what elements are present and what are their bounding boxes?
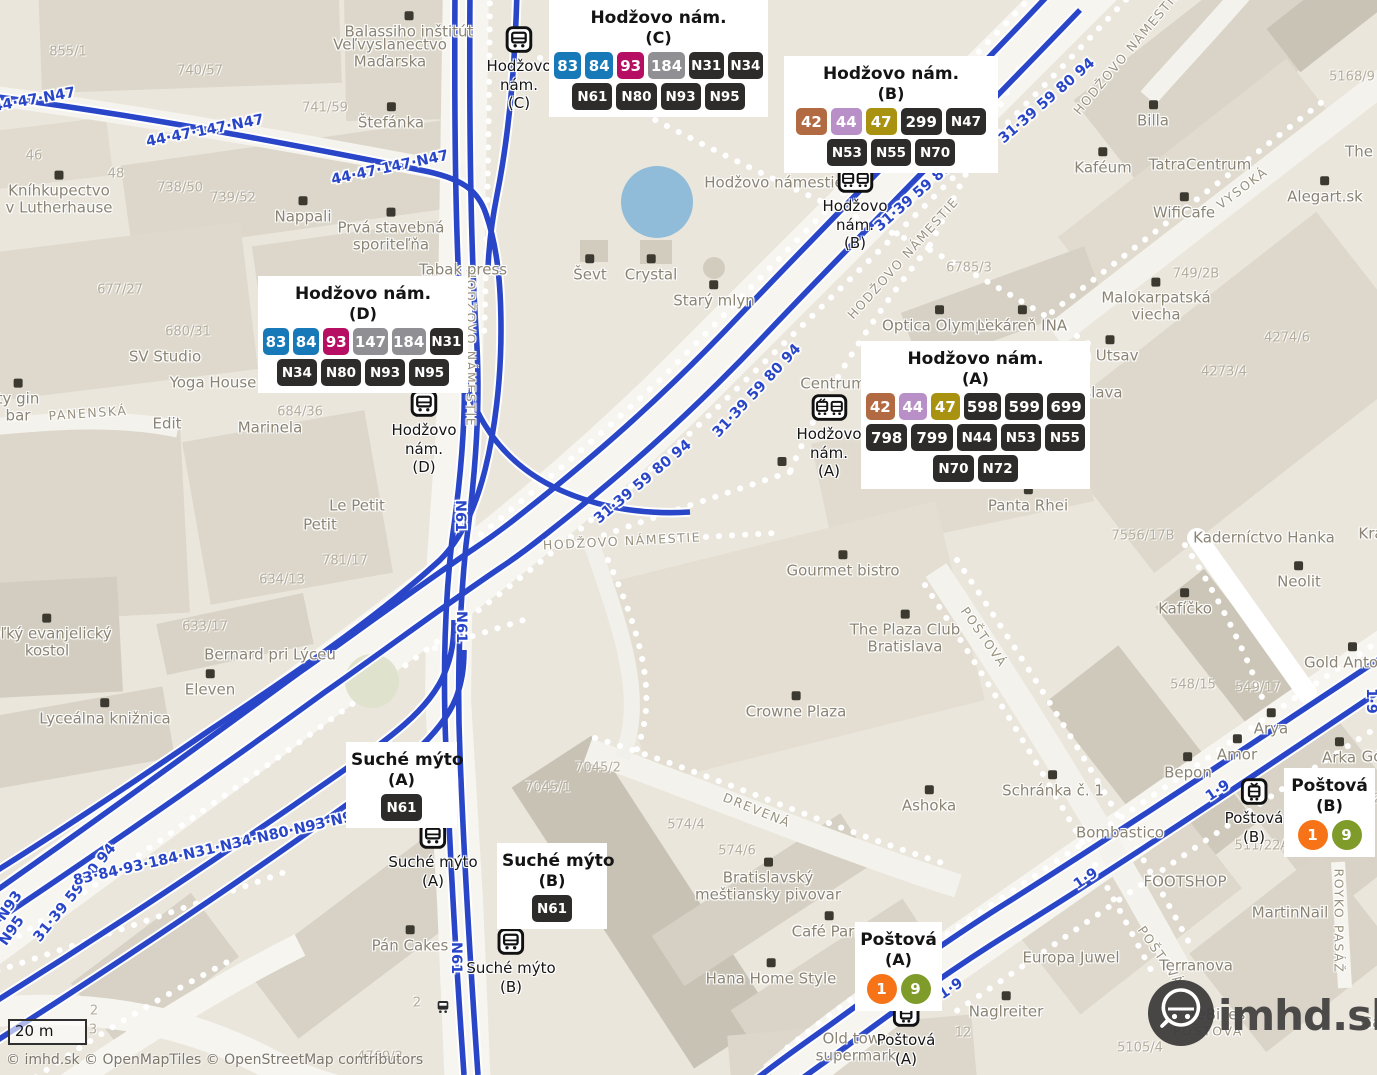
hotel-icon [791,691,800,700]
stop-marker-label: Hodžovo [822,198,887,216]
pharmacy-icon [1018,305,1027,314]
route-badge-N70[interactable]: N70 [933,455,973,482]
stop-marker: Hodžovonám.(B) [822,166,887,253]
dot-icon [1002,991,1011,1000]
parcel-label: 12 [955,1026,972,1041]
stop-marker-label: (A) [895,1051,917,1069]
route-badge-798[interactable]: 798 [866,424,907,451]
parcel-label: 781/17 [322,554,368,569]
stop-card-platform: (B) [502,871,602,891]
stop-card-hodzovo-nam-c: Hodžovo nám.(C)838493184N31N34N61N80N93N… [549,0,768,117]
poi-label-line: Bratislavský [723,870,814,887]
poi-label: Amor [1217,734,1257,763]
poi-label-line: TatraCentrum [1149,156,1252,173]
poi-label: Lekáreň INA [977,305,1067,334]
clothes-icon [1183,752,1192,761]
poi-label-line: FOOTSHOP [1143,873,1226,890]
route-line-label: 44·47·N47 [0,85,77,115]
poi-label: Petit [303,516,337,533]
imhd-logo-text: imhd.sk [1218,991,1377,1040]
stop-card-badge-row: N70N72 [866,455,1085,482]
restaurant-icon [838,550,847,559]
stop-marker-label: (A) [818,463,840,481]
poi-label: Marinela [238,419,303,436]
poi-label: Alegart.sk [1287,176,1363,205]
poi-label: FOOTSHOP [1143,873,1226,890]
parcel-label: 7045/2 [575,761,621,776]
poi-label-line: Kafíčko [1158,600,1212,617]
route-badge-93[interactable]: 93 [617,52,644,79]
bag-icon [585,254,594,263]
poi-label-line: Veľvyslanectvo [333,37,447,54]
poi-label [778,457,787,469]
restaurant-icon [1295,561,1304,570]
poi-label: Le Petit [329,497,385,514]
bus-stop-icon[interactable] [411,390,438,421]
street-label: DREVENÁ [721,790,793,831]
poi-label: Bratislavskýmeštiansky pivovar [695,858,841,905]
stop-marker: Hodžovonám.(A) [796,394,861,481]
stop-card-suche-myto-a: Suché mýto(A)N61 [346,742,457,828]
poi-label-line: Kníhkupectvo [8,183,110,200]
stop-marker-label: Suché mýto [466,960,555,978]
route-badge-44[interactable]: 44 [899,393,928,420]
poi-label: Ashoka [902,785,956,814]
parcel-label: 680/31 [165,325,211,340]
route-badge-N31[interactable]: N31 [430,328,463,355]
parcel-label: 574/6 [718,844,755,859]
poi-label: Kafíčko [1158,588,1212,617]
bag-icon [1347,642,1356,651]
stop-card-badge-row: 19 [1289,820,1370,850]
route-badge-N31[interactable]: N31 [689,52,724,79]
route-badge-N34[interactable]: N34 [277,359,317,386]
map-canvas[interactable]: 855/1740/57741/594648738/50739/52677/276… [0,0,1377,1075]
poi-label: Gold Antonic [1304,642,1377,671]
route-badge-147[interactable]: 147 [353,328,387,355]
route-badge-299[interactable]: 299 [901,108,942,135]
poi-label-line: Lekáreň INA [977,317,1067,334]
poi-label: Pán Cakes [372,925,449,954]
stop-card-postova-b: Poštová(B)19 [1284,768,1375,857]
burger-icon [1267,708,1276,717]
street-label: HODŽOVO NÁMESTIE [542,529,701,552]
route-badge-N34[interactable]: N34 [728,52,763,79]
poi-label-line: Panta Rhei [988,497,1068,514]
poi-label: Starý mlyn [673,280,755,309]
poi-label-line: Arya [1254,720,1289,737]
route-line-label: N61 [448,942,464,974]
parcel-label: 46 [26,149,43,164]
stop-card-badge-row: 838493184N31N34 [554,52,763,79]
cart-icon [1149,100,1158,109]
poi-label: Štefánka [358,102,424,131]
poi-label-line: Gó [1362,748,1377,765]
mail-icon [778,457,787,466]
poi-label: VeľvyslanectvoMaďarska [333,37,447,72]
stop-card-platform: (C) [554,28,763,48]
route-badge-N61[interactable]: N61 [572,83,612,110]
stop-card-postova-a: Poštová(A)19 [855,922,942,1011]
route-badge-N93[interactable]: N93 [365,359,405,386]
poi-label: Kaféum [1074,147,1131,176]
parcel-label: 634/13 [259,573,305,588]
cake-icon [405,925,414,934]
cafe-icon [206,669,215,678]
poi-label-line: Petit [303,516,337,533]
poi-label-line: bar [6,408,31,425]
route-badge-184[interactable]: 184 [392,328,426,355]
drink-icon [1151,278,1160,287]
poi-label-line: Nappali [275,208,332,225]
stop-marker: Hodžovonám.(C) [486,26,551,113]
stop-card-badge-row: 19 [860,974,937,1004]
route-badge-N80[interactable]: N80 [616,83,656,110]
route-line-label: 31·39 59 80 94 [710,341,805,441]
poi-label-line: Schránka č. 1 [1002,782,1104,799]
stop-card-platform: (B) [789,84,993,104]
poi-label-line: Bepon [1164,764,1212,781]
poi-label-line: kostol [25,643,69,660]
stop-card-title: Suché mýto [502,851,602,871]
parcel-label: 855/1 [49,45,86,60]
stop-card-badge-row: 424447598599699 [866,393,1085,420]
route-badge-N70[interactable]: N70 [915,139,955,166]
poi-label-line: Naglreiter [969,1003,1044,1020]
cafe-icon [1099,147,1108,156]
poi-label: Terranova [1159,957,1233,974]
bag-icon [1334,737,1343,746]
poi-label-line: WifiCafe [1153,204,1215,221]
parcel-label: 574/4 [667,818,704,833]
poi-label: SV Studio [129,348,201,365]
poi-label-line: meštiansky pivovar [695,887,841,904]
route-badge-599[interactable]: 599 [1005,393,1043,420]
poi-label: Ševt [573,254,607,283]
route-line-label: N61 [452,500,468,532]
poi-label: Arka [1322,737,1356,766]
poi-label-line: Centrum [800,375,865,392]
cafe-icon [825,911,834,920]
poi-label: Hana Home Style [706,958,837,987]
stop-marker-label: nám. [405,441,443,459]
stop-marker-label: (B) [844,235,866,253]
route-line-label: 1·9 [1363,688,1377,714]
poi-label-line: Bernard pri Lýceu [204,646,336,663]
poi-label: Europa Juwel [1022,949,1119,966]
stop-marker [435,999,451,1019]
stop-card-badge-row: 798799N44N53N55 [866,424,1085,451]
parcel-label: 677/27 [97,283,143,298]
stop-card-title: Hodžovo nám. [263,284,463,304]
poi-label-line: Yoga House [170,374,257,391]
poi-label: Crystal [625,254,678,283]
stop-marker: Suché mýto(A) [388,822,477,890]
poi-label-line: Starý mlyn [673,292,755,309]
poi-label: Naglreiter [969,991,1044,1020]
poi-label: Crowne Plaza [746,691,847,720]
bag-icon [646,254,655,263]
parcel-label: 6785/3 [946,261,992,276]
route-badge-184[interactable]: 184 [648,52,684,79]
poi-label-line: Crystal [625,266,678,283]
poi-label: The Plaza ClubBratislava [850,610,961,657]
route-badge-799[interactable]: 799 [911,424,952,451]
stop-card-hodzovo-nam-a: Hodžovo nám.(A)424447598599699798799N44N… [861,341,1090,489]
street-label: ROYKO PASÁŽ [1332,869,1347,974]
parcel-label: 5168/9 [1329,70,1375,85]
route-line-label: 44·47·147·N47 [330,148,450,188]
route-line-label: 31·39 59 80 94 [31,841,120,946]
stop-marker-label: nám. [500,77,538,95]
poi-label: Edit [152,415,181,432]
mail-icon [1048,770,1057,779]
drink-icon [13,379,22,388]
route-badge-44[interactable]: 44 [831,108,862,135]
stop-marker-label: (C) [508,95,530,113]
route-badge-1[interactable]: 1 [1298,820,1328,850]
poi-label: Prvá stavebnásporiteľňa [338,208,445,255]
poi-label-line: Gold Antonic [1304,654,1377,671]
stop-marker: Hodžovonám.(D) [391,390,456,477]
poi-label-line: Lyceálna knižnica [39,710,171,727]
stop-card-badge-row: N53N55N70 [789,139,993,166]
bag-icon [1233,734,1242,743]
route-badge-598[interactable]: 598 [964,393,1002,420]
poi-label: Neolit [1277,561,1321,590]
route-badge-N61[interactable]: N61 [532,895,572,922]
parcel-label: 4273/4 [1201,365,1247,380]
poi-label: Malokarpatskáviecha [1101,278,1210,325]
route-badge-9[interactable]: 9 [901,974,931,1004]
stop-card-badge-row: N61N80N93N95 [554,83,763,110]
poi-label-line: Bratislava [868,639,943,656]
route-badge-9[interactable]: 9 [1332,820,1362,850]
bus-stop-icon[interactable] [497,928,524,959]
stop-card-platform: (A) [860,950,937,970]
bag-icon [767,958,776,967]
parcel-label: 548/15 [1170,678,1216,693]
poi-label-line: Štefánka [358,114,424,131]
route-badge-N55[interactable]: N55 [1045,424,1085,451]
stop-card-suche-myto-b: Suché mýto(B)N61 [497,843,607,929]
stop-card-title: Hodžovo nám. [554,8,763,28]
parcel-label: 684/36 [277,405,323,420]
route-badge-47[interactable]: 47 [866,108,897,135]
stop-marker-label: nám. [810,445,848,463]
imhd-logo-icon [1146,978,1216,1052]
cocktail-icon [900,610,909,619]
stop-marker-label: Hodžovo [796,426,861,444]
poi-label-line: Kaderníctvo Hanka [1193,529,1335,546]
poi-label-line: SV Studio [129,348,201,365]
poi-label-line: Amor [1217,746,1257,763]
route-badge-42[interactable]: 42 [866,393,895,420]
stop-card-title: Poštová [860,930,937,950]
bus-stop-icon[interactable] [506,26,533,57]
poi-label-line: Arka [1322,749,1356,766]
route-line-label: 1·9 [1071,865,1101,893]
poi-label: Centrum [800,375,865,392]
route-badge-699[interactable]: 699 [1047,393,1085,420]
stop-card-platform: (A) [866,369,1085,389]
poi-label: Nappali [275,196,332,225]
poi-label-line: Le Petit [329,497,385,514]
poi-label: h Utsav [1081,335,1138,364]
route-badge-N95[interactable]: N95 [705,83,745,110]
book-icon [100,698,109,707]
poi-label: WifiCafe [1153,192,1215,221]
art-icon [1320,176,1329,185]
poi-label: Gourmet bistro [786,550,899,579]
stop-marker-label: nám. [836,217,874,235]
parcel-label: 738/50 [157,181,203,196]
poi-label: Kníhkupectvov Lutherhause [5,171,112,218]
stop-marker-label: (B) [500,979,522,997]
street-label: PANENSKÁ [48,403,128,423]
stop-card-badge-row: N34N80N93N95 [263,359,463,386]
route-badge-N53[interactable]: N53 [1001,424,1041,451]
restaurant-icon [386,102,395,111]
parcel-label: 740/57 [177,64,223,79]
route-badge-N80[interactable]: N80 [321,359,361,386]
stop-marker: Suché mýto(B) [466,928,555,996]
route-badge-N95[interactable]: N95 [409,359,449,386]
parcel-label: 549/17 [1235,681,1281,696]
poi-label-line: The [1345,143,1373,160]
poi-label-line: Eleven [185,681,236,698]
stop-card-title: Suché mýto [351,750,452,770]
poi-label-line: Hana Home Style [706,970,837,987]
poi-label-line: Crowne Plaza [746,703,847,720]
poi-label-line: Billa [1137,112,1169,129]
route-badge-84[interactable]: 84 [293,328,319,355]
parcel-label: 2 [90,1004,98,1019]
stop-card-badge-row: N61 [502,895,602,922]
poi-label-line: Ševt [573,266,607,283]
route-badge-N61[interactable]: N61 [381,794,421,821]
stop-card-badge-row: 838493147184N31 [263,328,463,355]
stop-marker-label: (D) [412,459,435,477]
parcel-label: 739/52 [210,191,256,206]
poi-label-line: Maďarska [354,54,426,71]
poi-label: Yoga House [170,374,257,391]
poi-label: Veľký evanjelickýkostol [0,614,112,661]
route-badge-93[interactable]: 93 [323,328,349,355]
poi-label: Kaderníctvo Hanka [1193,529,1335,546]
stop-marker-label: Hodžovo [486,58,551,76]
scale-label: 20 m [15,1022,53,1040]
route-badge-84[interactable]: 84 [585,52,612,79]
poi-label-line: viecha [1131,307,1180,324]
route-badge-42[interactable]: 42 [796,108,827,135]
route-badge-N53[interactable]: N53 [827,139,867,166]
stop-card-title: Poštová [1289,776,1370,796]
stop-card-platform: (B) [1289,796,1370,816]
poi-label-line: MartinNail [1252,904,1329,921]
cafe-icon [1179,192,1188,201]
route-badge-N47[interactable]: N47 [946,108,986,135]
poi-label-line: Edit [152,415,181,432]
parcel-label: 7045/1 [525,781,571,796]
imhd-logo[interactable]: imhd.sk [1146,978,1377,1052]
stop-card-hodzovo-nam-b: Hodžovo nám.(B)424447299N47N53N55N70 [784,56,998,173]
parcel-label: 633/17 [182,620,228,635]
poi-label: The [1345,143,1373,160]
tram-stop-icon[interactable] [1240,778,1267,809]
poi-label: Gó [1362,748,1377,765]
poi-label-line: h Utsav [1081,347,1138,364]
stop-marker: Poštová(B) [1225,778,1284,846]
parcel-label: 7556/17B [1112,529,1175,544]
stop-card-platform: (D) [263,304,463,324]
stop-marker-label: (A) [422,873,444,891]
poi-label-line: Neolit [1277,573,1321,590]
route-line-label: N61 [453,611,469,643]
cafe-icon [298,196,307,205]
restaurant-icon [764,858,773,867]
poi-label-line: ty gin [0,391,39,408]
scale-bar: 20 m [8,1019,87,1045]
route-badge-N93[interactable]: N93 [661,83,701,110]
route-badge-83[interactable]: 83 [263,328,289,355]
poi-label: Arya [1254,708,1289,737]
poi-label-line: Terranova [1159,957,1233,974]
poi-label: Krá [1358,525,1377,542]
stop-marker-label: Hodžovo [391,422,456,440]
stop-marker-label: Poštová [877,1032,936,1050]
poi-label-line: Pán Cakes [372,937,449,954]
poi-label-line: Marinela [238,419,303,436]
parcel-label: 3 [89,1023,97,1038]
poi-label-line: The Plaza Club [850,622,961,639]
street-label: POŠTOVÁ [958,604,1010,670]
poi-label-line: Kaféum [1074,159,1131,176]
route-badge-N44[interactable]: N44 [957,424,997,451]
poi-label: Lyceálna knižnica [39,698,171,727]
route-badge-1[interactable]: 1 [867,974,897,1004]
trolleybus-bus-stop-icon[interactable] [811,394,847,425]
route-line-label: 31·39 59 80 94 [591,437,694,527]
poi-label: Billa [1137,100,1169,129]
poi-label-line: Ashoka [902,797,956,814]
route-badge-83[interactable]: 83 [554,52,581,79]
map-attribution: © imhd.sk © OpenMapTiles © OpenStreetMap… [6,1052,423,1068]
route-badge-N72[interactable]: N72 [978,455,1018,482]
stop-card-badge-row: N61 [351,794,452,821]
poi-label-line: Krá [1358,525,1377,542]
stop-marker-label: (B) [1243,829,1265,847]
bank-icon [387,208,396,217]
poi-label: Bombastico [1076,824,1164,841]
poi-label: Panta Rhei [988,485,1068,514]
poi-label-line: v Lutherhause [5,200,112,217]
parcel-label: 2 [413,996,421,1011]
poi-label: ty ginbar [0,379,39,426]
poi-label-line: sporiteľňa [353,237,429,254]
bus-glyph-icon[interactable] [435,999,451,1019]
label-overlay: 855/1740/57741/594648738/50739/52677/276… [0,0,1377,1075]
poi-label: TatraCentrum [1149,156,1252,173]
poi-label-line: Prvá stavebná [338,220,445,237]
route-badge-N55[interactable]: N55 [871,139,911,166]
route-badge-47[interactable]: 47 [931,393,960,420]
poi-label-line: Europa Juwel [1022,949,1119,966]
stop-card-hodzovo-nam-d: Hodžovo nám.(D)838493147184N31N34N80N93N… [258,276,468,393]
poi-label-line: Malokarpatská [1101,290,1210,307]
cafe-icon [1180,588,1189,597]
poi-label: Bepon [1164,752,1212,781]
